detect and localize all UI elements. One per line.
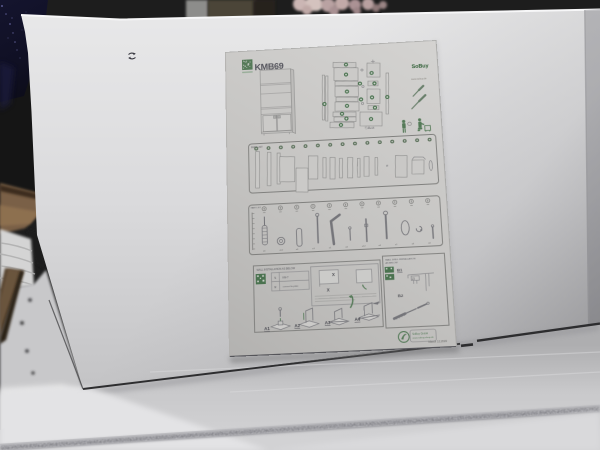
svg-text:x: x [332, 273, 336, 279]
svg-text:SoBuy: SoBuy [412, 63, 429, 70]
svg-text:A3: A3 [325, 320, 332, 326]
svg-text:⚒: ⚒ [274, 286, 277, 289]
svg-text:B2: B2 [398, 294, 404, 299]
svg-text:⇅: ⇅ [274, 277, 276, 280]
svg-text:B1: B1 [397, 268, 403, 273]
svg-text:KM-7: KM-7 [283, 277, 290, 280]
svg-text:AS BELOW: AS BELOW [385, 261, 397, 265]
svg-text:A1: A1 [264, 326, 271, 332]
svg-text:PART LIST: PART LIST [251, 206, 262, 210]
svg-text:x: x [327, 288, 331, 294]
svg-text:A2: A2 [294, 323, 301, 329]
